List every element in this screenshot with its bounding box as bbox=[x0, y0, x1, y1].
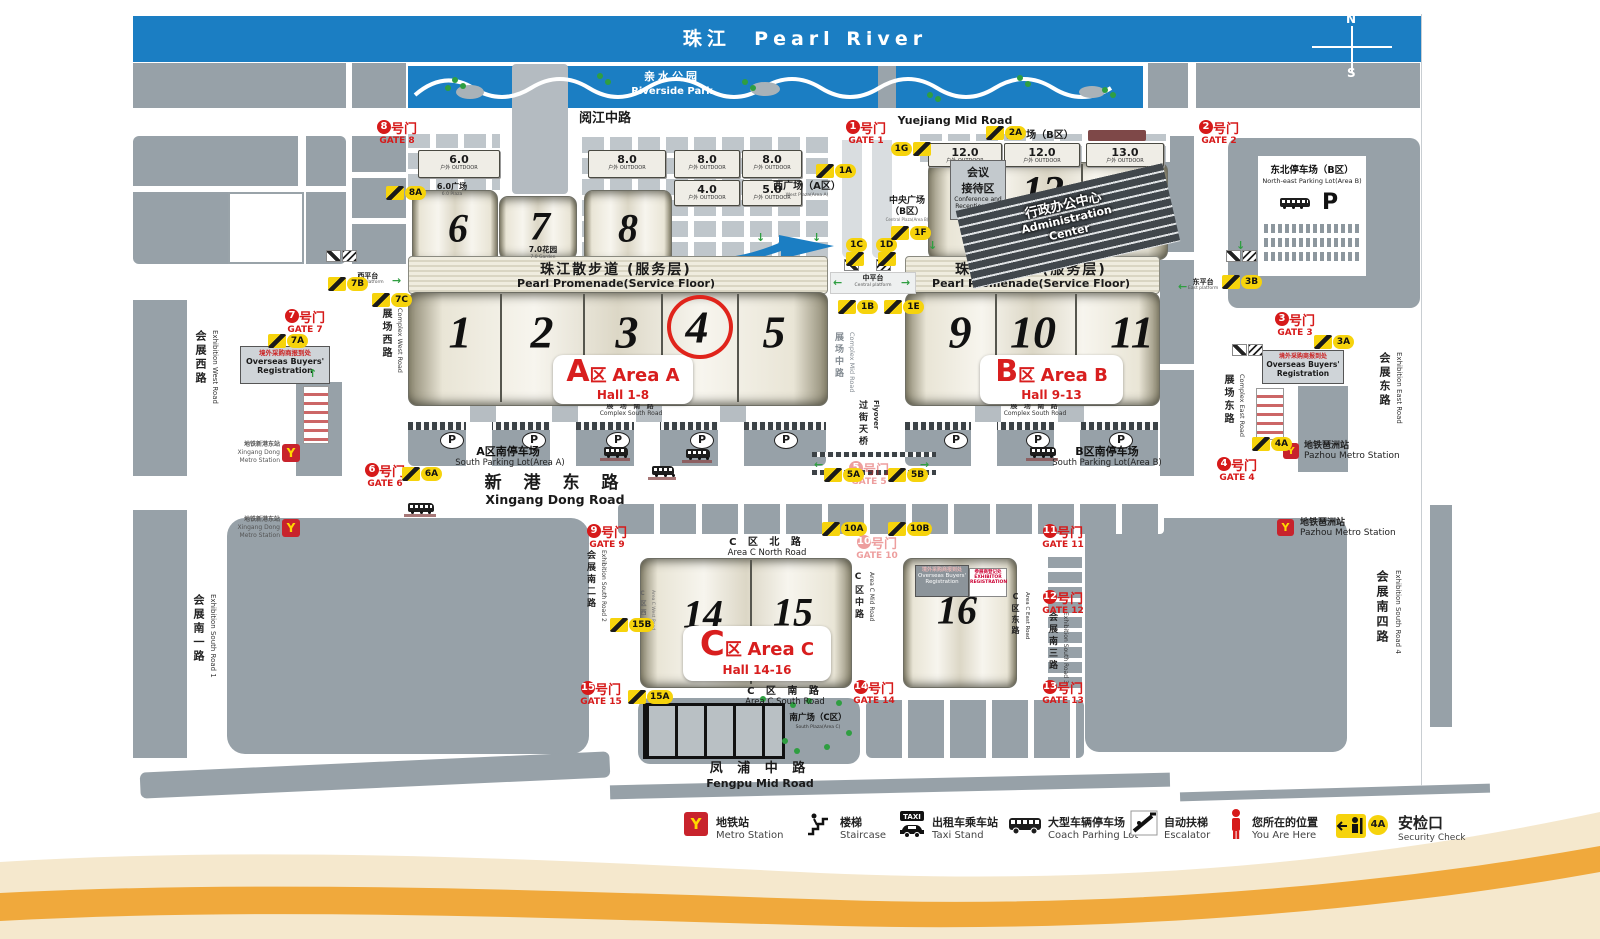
city-block bbox=[133, 300, 187, 476]
bus-stop-icon bbox=[408, 503, 434, 512]
fengpu-road-cn: 凤 浦 中 路 bbox=[700, 762, 820, 777]
hall-11-number: 11 bbox=[1110, 306, 1153, 359]
security-icon bbox=[824, 468, 842, 482]
arrow-left-icon: ← bbox=[814, 459, 823, 470]
hall-9-number: 9 bbox=[949, 306, 972, 359]
security-check-7a: 7A bbox=[268, 334, 308, 348]
xingang-metro-label-2: 地铁新港东站 Xingang Dong Metro Station bbox=[222, 516, 280, 539]
pearl-river-cn: 珠江 bbox=[683, 28, 731, 50]
arrow-left-icon: ← bbox=[1178, 281, 1187, 292]
ne-parking-en: North-east Parking Lot(Area B) bbox=[1248, 178, 1376, 185]
compass-north: N bbox=[1346, 13, 1356, 27]
arrow-down-icon: ↓ bbox=[756, 232, 765, 243]
parking-gap bbox=[634, 422, 660, 466]
hall16-exhibitor-registration: 参展商登记处 EXHIBITOR REGISTRATION bbox=[969, 568, 1007, 597]
exhibition-south-road-2: 会展南二路Exhibition South Road 2 bbox=[584, 550, 607, 622]
road-edge bbox=[610, 773, 1170, 800]
arrow-left-icon: ← bbox=[833, 277, 842, 288]
road-edge bbox=[1180, 784, 1490, 802]
ne-parking-cn: 东北停车场（B区） bbox=[1252, 166, 1372, 177]
area-c-north-en: Area C North Road bbox=[712, 549, 822, 559]
security-check-1b: 1B bbox=[838, 300, 878, 314]
bus-stop-text bbox=[648, 477, 676, 480]
outdoor-4.0: 4.0户外 OUTDOOR bbox=[674, 180, 740, 206]
building bbox=[228, 192, 304, 264]
outdoor-12.0: 12.0户外 OUTDOOR bbox=[1004, 143, 1080, 167]
pearl-river-en: Pearl River bbox=[754, 28, 927, 50]
south-parking-b-en: South Parking Lot(Area B) bbox=[1040, 459, 1174, 469]
gate-15: 15号门GATE 15 bbox=[569, 681, 633, 707]
metro-icon bbox=[282, 519, 300, 537]
area-b-label: B区 Area B Hall 9-13 bbox=[980, 355, 1123, 404]
security-check-1f: 1F bbox=[891, 226, 931, 240]
security-check-2a: 2A bbox=[986, 126, 1026, 140]
park-en: Riverside Park bbox=[612, 86, 732, 98]
area-c-mid-road: C区中路Area C Mid Road bbox=[852, 572, 875, 621]
plaza-6.0-en: 6.0 Plaza bbox=[420, 192, 484, 197]
wave-orange bbox=[0, 846, 1600, 927]
security-icon bbox=[328, 277, 346, 291]
central-plaza-cn2: （B区） bbox=[877, 207, 937, 217]
security-icon bbox=[888, 522, 906, 536]
yuejiang-road-cn: 阅江中路 bbox=[555, 112, 655, 127]
parking-rows bbox=[1264, 224, 1360, 233]
legend-staircase: 楼梯Staircase bbox=[840, 814, 886, 841]
tree-icon bbox=[846, 730, 852, 736]
pazhou-metro-label-2: 地铁琶洲站 Pazhou Metro Station bbox=[1304, 441, 1400, 462]
overseas-registration-east: 境外采购商报到处 Overseas Buyers' Registration bbox=[1262, 350, 1344, 384]
hall-10-number: 10 bbox=[1010, 306, 1056, 359]
road-edge bbox=[140, 751, 611, 798]
security-check-6a: 6A bbox=[402, 467, 442, 481]
bus-stop-icon bbox=[652, 466, 674, 475]
security-icon bbox=[838, 300, 856, 314]
security-check-7c: 7C bbox=[372, 293, 412, 307]
pazhou-metro-label-1: 地铁琶洲站 Pazhou Metro Station bbox=[1300, 518, 1396, 539]
security-check-1g: 1G bbox=[891, 142, 931, 156]
security-icon bbox=[822, 522, 840, 536]
security-check-7b: 7B bbox=[328, 277, 368, 291]
outdoor-13.0: 13.0户外 OUTDOOR bbox=[1086, 143, 1164, 167]
security-icon bbox=[888, 468, 906, 482]
parking-p-icon: P bbox=[774, 432, 798, 449]
legend-taxi-icon: TAXI bbox=[898, 810, 926, 842]
south-plaza-en: South Plaza(Area C) bbox=[772, 725, 864, 730]
security-check-1c: 1C bbox=[846, 238, 867, 252]
park-road bbox=[878, 66, 896, 108]
garden-7.0-en: 7.0 Garden bbox=[510, 255, 576, 260]
hall-2-number: 2 bbox=[531, 306, 554, 359]
west-plaza-cn: 西广场（A区） bbox=[766, 181, 848, 193]
legend-coach: 大型车辆停车场Coach Parhing Lot bbox=[1048, 814, 1138, 841]
parking-p-icon: P bbox=[944, 432, 968, 449]
west-plaza-en: West Plaza(Area A) bbox=[766, 193, 848, 198]
bus-stop-text bbox=[600, 458, 630, 461]
exhibition-south-road-4: 会展南四路Exhibition South Road 4 bbox=[1374, 570, 1402, 654]
security-icon bbox=[846, 252, 864, 266]
park-cn: 亲水公园 bbox=[612, 71, 732, 84]
hall-divider bbox=[737, 294, 739, 402]
security-icon bbox=[878, 252, 896, 266]
xingang-road-cn: 新 港 东 路 bbox=[468, 474, 643, 494]
venue-map: 珠江 Pearl River 亲水公园 Riverside Park N S 阅… bbox=[0, 0, 1600, 939]
city-block bbox=[1196, 63, 1420, 108]
legend-staircase-icon bbox=[806, 810, 830, 842]
area-c-north-cn: C 区 北 路 bbox=[712, 537, 822, 549]
legend-metro: 地铁站Metro Station bbox=[716, 814, 783, 841]
tree-icon bbox=[794, 748, 800, 754]
legend-escalator-icon bbox=[1130, 810, 1158, 840]
hall-3-number: 3 bbox=[616, 306, 639, 359]
security-check-10a: 10A bbox=[822, 522, 867, 536]
security-icon bbox=[610, 618, 628, 632]
xingang-metro-label-1: 地铁新港东站 Xingang Dong Metro Station bbox=[222, 441, 280, 464]
hall-1-number: 1 bbox=[449, 306, 472, 359]
security-check-3a: 3A bbox=[1314, 335, 1354, 349]
security-icon bbox=[913, 142, 931, 156]
metro-icon bbox=[1277, 519, 1294, 536]
south-parking-b-cn: B区南停车场 bbox=[1052, 446, 1162, 459]
arrow-up-icon: ↑ bbox=[308, 368, 317, 379]
svg-text:TAXI: TAXI bbox=[903, 813, 921, 821]
area-c-east-road: C区东路Area C East Road bbox=[1010, 592, 1030, 639]
arrow-right-icon: → bbox=[901, 277, 910, 288]
security-icon bbox=[628, 690, 646, 704]
exhibition-south-road-3: 会展南三路Exhibition South Road 3 bbox=[1046, 612, 1069, 684]
arrow-right-icon: → bbox=[392, 275, 401, 286]
gate-8: 8号门GATE 8 bbox=[365, 120, 429, 146]
security-icon bbox=[1314, 335, 1332, 349]
bus-icon bbox=[686, 449, 710, 458]
security-check-1e: 1E bbox=[884, 300, 924, 314]
tower-leg bbox=[546, 132, 556, 194]
security-icon bbox=[386, 186, 404, 200]
gate-14: 14号门GATE 14 bbox=[842, 680, 906, 706]
central-plaza-cn1: 中央广场 bbox=[877, 196, 937, 206]
south-plaza-cn: 南广场（C区） bbox=[772, 714, 864, 724]
security-icon bbox=[372, 293, 390, 307]
security-check-15a: 15A bbox=[628, 690, 673, 704]
flyover-hatch bbox=[812, 452, 936, 457]
hall-divider bbox=[500, 294, 502, 402]
escalator-icon bbox=[326, 250, 341, 262]
bus-stop-text bbox=[682, 460, 712, 463]
exhibition-east-road: 会展东路Exhibition East Road bbox=[1376, 352, 1403, 424]
garden-7.0-cn: 7.0花园 bbox=[510, 246, 576, 255]
gate-10: 10号门GATE 10 bbox=[845, 535, 909, 561]
security-icon bbox=[986, 126, 1004, 140]
gate-2: 2号门GATE 2 bbox=[1187, 120, 1251, 146]
city-block bbox=[133, 63, 346, 108]
hall-4-highlight-circle bbox=[667, 295, 733, 359]
south-parking-a-cn: A区南停车场 bbox=[448, 446, 568, 459]
gate-11: 11号门GATE 11 bbox=[1031, 524, 1095, 550]
city-block bbox=[1148, 63, 1188, 108]
security-icon bbox=[1252, 437, 1270, 451]
promenade-a-cn: 珠江散步道 (服务层) bbox=[540, 262, 692, 278]
outdoor-8.0: 8.0户外 OUTDOOR bbox=[588, 150, 666, 178]
legend-security-badge: 4A bbox=[1368, 815, 1388, 835]
hall-6-number: 6 bbox=[448, 205, 468, 252]
tower-leg bbox=[522, 132, 532, 194]
parking-hatch bbox=[905, 422, 1158, 430]
security-check-15b: 15B bbox=[610, 618, 654, 632]
outdoor-8.0: 8.0户外 OUTDOOR bbox=[742, 150, 802, 178]
gate-7: 7号门GATE 7 bbox=[273, 309, 337, 335]
exhibition-west-road: 会展西路Exhibition West Road bbox=[192, 330, 219, 404]
security-check-10b: 10B bbox=[888, 522, 932, 536]
city-block-row bbox=[866, 700, 1084, 758]
legend-security: 安检口Security Check bbox=[1398, 812, 1466, 843]
bus-stop-text bbox=[404, 514, 436, 517]
security-check-5b: 5B bbox=[888, 468, 928, 482]
security-icon bbox=[884, 300, 902, 314]
complex-east-road: 展场东路Complex East Road bbox=[1220, 374, 1246, 437]
escalator-icon bbox=[1232, 344, 1247, 356]
ne-parking-p: P bbox=[1322, 190, 1338, 215]
city-block bbox=[352, 63, 406, 108]
staircase-icon bbox=[342, 250, 357, 262]
east-plaza-sign bbox=[1088, 130, 1146, 141]
complex-mid-road: 展场中路Complex Mid Road bbox=[832, 332, 856, 393]
exhibition-south-road-1: 会展南一路Exhibition South Road 1 bbox=[190, 594, 217, 678]
city-block bbox=[227, 518, 589, 754]
security-icon bbox=[268, 334, 286, 348]
security-check-1a: 1A bbox=[816, 164, 856, 178]
plaza-6.0-cn: 6.0广场 bbox=[420, 182, 484, 191]
parking-p-icon: P bbox=[690, 432, 714, 449]
security-check-4a: 4A bbox=[1252, 437, 1292, 451]
parking-gap bbox=[718, 422, 744, 466]
legend-escalator: 自动扶梯Escalator bbox=[1164, 814, 1210, 841]
parking-rows bbox=[1264, 252, 1360, 261]
area-c-south-en: Area C South Road bbox=[730, 698, 840, 708]
gate-4: 4号门GATE 4 bbox=[1205, 457, 1269, 483]
bus-icon bbox=[1030, 447, 1056, 456]
city-block bbox=[133, 510, 187, 758]
staircase-icon bbox=[1248, 344, 1263, 356]
coach-icon bbox=[1280, 198, 1310, 207]
legend-taxi: 出租车乘车站Taxi Stand bbox=[932, 814, 998, 841]
compass-south: S bbox=[1347, 67, 1356, 81]
legend-metro-icon bbox=[684, 812, 708, 836]
outdoor-6.0: 6.0户外 OUTDOOR bbox=[418, 150, 500, 178]
fengpu-road-en: Fengpu Mid Road bbox=[700, 778, 820, 791]
security-icon bbox=[1222, 275, 1240, 289]
gate-9: 9号门GATE 9 bbox=[575, 524, 639, 550]
arrow-down-icon: ↓ bbox=[928, 240, 937, 251]
security-check-8a: 8A bbox=[386, 186, 426, 200]
arrow-down-icon: ↓ bbox=[812, 232, 821, 243]
legend-coach-icon bbox=[1008, 816, 1042, 840]
security-icon bbox=[402, 467, 420, 481]
map-edge-line bbox=[1421, 14, 1422, 786]
hall-7-number: 7 bbox=[530, 203, 550, 250]
legend-you-are-here: 您所在的位置You Are Here bbox=[1252, 814, 1318, 841]
complex-south-road-b-en: Complex South Road bbox=[990, 411, 1080, 418]
south-plaza-building bbox=[643, 703, 785, 759]
city-block bbox=[1430, 505, 1452, 727]
outdoor-8.0: 8.0户外 OUTDOOR bbox=[674, 150, 740, 178]
complex-west-road: 展场西路Complex West Road bbox=[378, 308, 404, 373]
hall-8-number: 8 bbox=[618, 205, 638, 252]
tree-icon bbox=[824, 744, 830, 750]
gate-12: 12号门GATE 12 bbox=[1031, 590, 1095, 616]
security-icon bbox=[816, 164, 834, 178]
east-platform: 东平台East platform bbox=[1188, 278, 1218, 291]
registration-sign bbox=[1256, 388, 1284, 440]
complex-south-road-a-en: Complex South Road bbox=[586, 411, 676, 418]
security-check-3b: 3B bbox=[1222, 275, 1262, 289]
central-plaza-en: Central Plaza(Area B) bbox=[877, 218, 937, 223]
area-a-label: A区 Area A Hall 1-8 bbox=[553, 355, 693, 404]
area-c-label: C区 Area C Hall 14-16 bbox=[683, 626, 831, 681]
pearl-river-label: 珠江 Pearl River bbox=[640, 29, 970, 51]
bus-icon bbox=[604, 447, 628, 456]
hall-5-number: 5 bbox=[763, 306, 786, 359]
flyover-label: 过街天桥Flyover bbox=[856, 400, 880, 448]
south-parking-a-en: South Parking Lot(Area A) bbox=[442, 459, 578, 469]
security-check-5a: 5A bbox=[824, 468, 864, 482]
arrow-down-icon: ↓ bbox=[1236, 240, 1245, 251]
city-block bbox=[1085, 518, 1347, 752]
parking-rows bbox=[1264, 238, 1360, 247]
city-block bbox=[352, 224, 406, 264]
metro-icon bbox=[282, 444, 300, 462]
legend-you-are-here-icon bbox=[1228, 808, 1244, 844]
xingang-road-en: Xingang Dong Road bbox=[470, 493, 640, 507]
registration-sign bbox=[303, 386, 329, 444]
parking-gap bbox=[971, 422, 997, 466]
promenade-b-en: Pearl Promenade(Service Floor) bbox=[932, 278, 1130, 291]
city-block bbox=[1160, 260, 1194, 364]
gate-13: 13号门GATE 13 bbox=[1031, 680, 1095, 706]
promenade-a-en: Pearl Promenade(Service Floor) bbox=[517, 278, 715, 291]
legend-security-icon bbox=[1336, 814, 1366, 842]
tower-structure bbox=[512, 64, 568, 194]
security-check-1d: 1D bbox=[876, 238, 897, 252]
gate-1: 1号门GATE 1 bbox=[834, 120, 898, 146]
area-c-south-cn: C 区 南 路 bbox=[730, 686, 840, 698]
hall16-overseas-registration: 境外采购商报到处 Overseas Buyers' Registration bbox=[915, 565, 969, 597]
tree-icon bbox=[782, 738, 788, 744]
security-icon bbox=[891, 226, 909, 240]
